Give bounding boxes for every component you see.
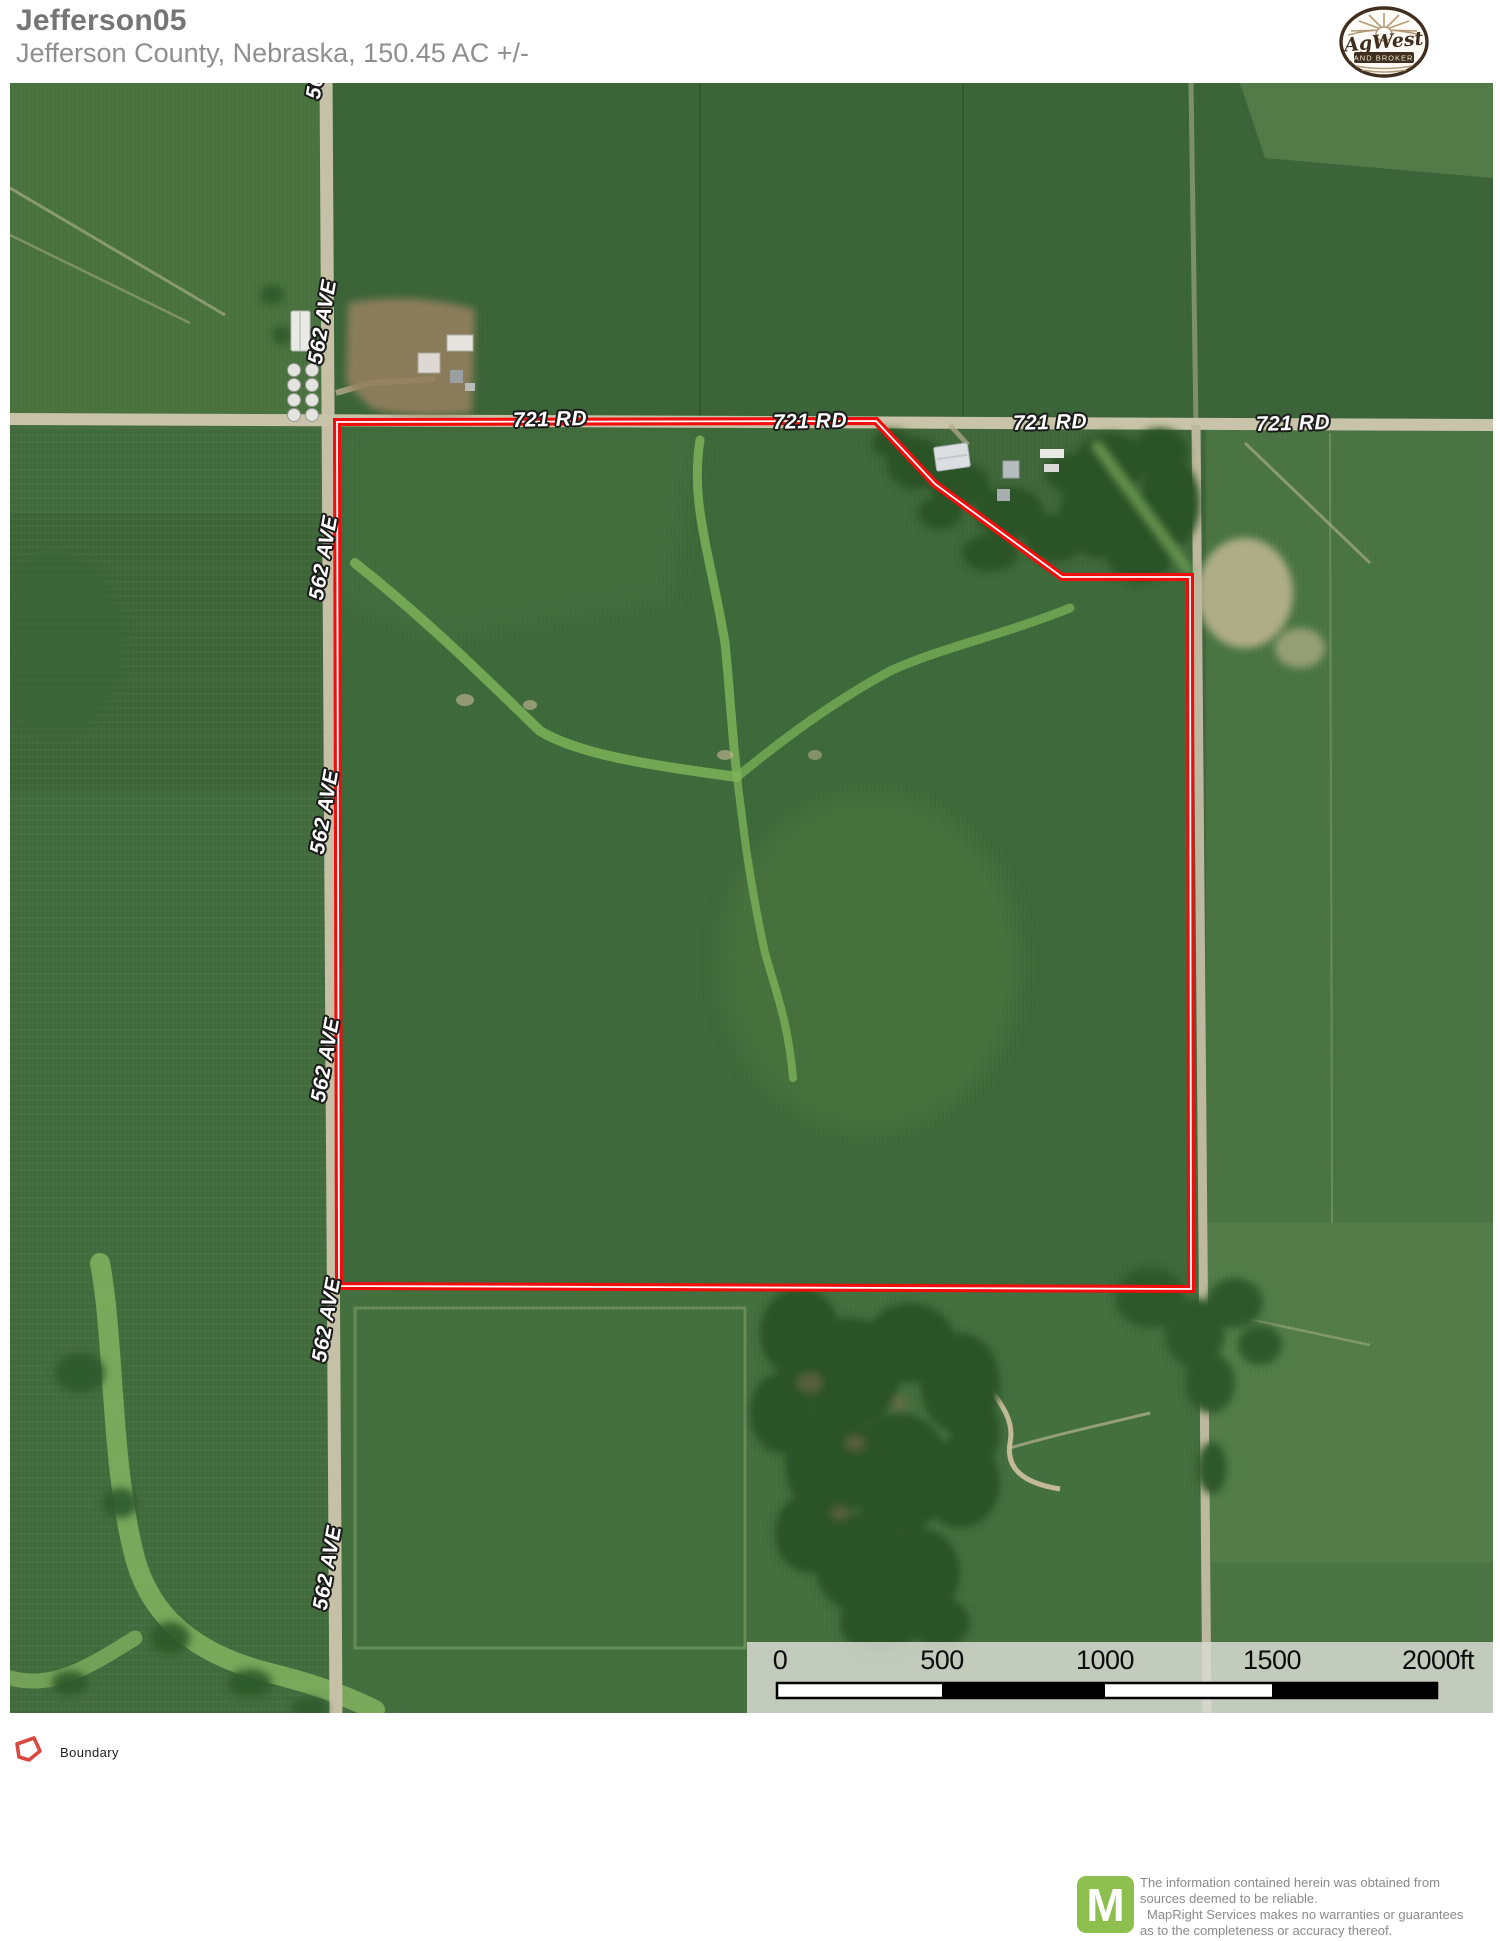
road-label-721rd: 721 RD (773, 409, 848, 435)
road-label-721rd: 721 RD (513, 407, 588, 433)
road-label-721rd: 721 RD (1013, 410, 1088, 436)
disclaimer-line: The information contained herein was obt… (1140, 1875, 1500, 1891)
legend-label: Boundary (60, 1745, 119, 1760)
mapright-logo-letter: M (1086, 1882, 1124, 1928)
farm-house (418, 353, 440, 373)
logo-banner-text: LAND BROKERS (1349, 54, 1420, 63)
mapright-logo: M (1077, 1876, 1134, 1933)
boundary-icon (13, 1735, 43, 1763)
page-title: Jefferson05 (16, 4, 187, 38)
disclaimer-text: The information contained herein was obt… (1140, 1875, 1500, 1939)
road-label-721rd: 721 RD (1256, 411, 1331, 437)
scale-tick-1500: 1500 (1243, 1645, 1301, 1676)
disclaimer-line: sources deemed to be reliable. (1140, 1891, 1500, 1907)
aerial-imagery (10, 83, 1493, 1713)
scale-tick-2000ft: 2000ft (1402, 1645, 1474, 1676)
map-canvas: 721 RD 721 RD 721 RD 721 RD 562 AVE 562 … (10, 83, 1493, 1713)
page-subtitle: Jefferson County, Nebraska, 150.45 AC +/… (16, 38, 529, 69)
disclaimer-line: as to the completeness or accuracy there… (1140, 1923, 1500, 1939)
disclaimer-line: MapRight Services makes no warranties or… (1140, 1907, 1500, 1923)
agwest-logo: AgWest LAND BROKERS (1338, 5, 1430, 79)
scale-tick-0: 0 (773, 1645, 788, 1676)
scale-tick-1000: 1000 (1076, 1645, 1134, 1676)
map-export-page: Jefferson05 Jefferson County, Nebraska, … (0, 0, 1500, 1941)
scale-tick-500: 500 (920, 1645, 964, 1676)
